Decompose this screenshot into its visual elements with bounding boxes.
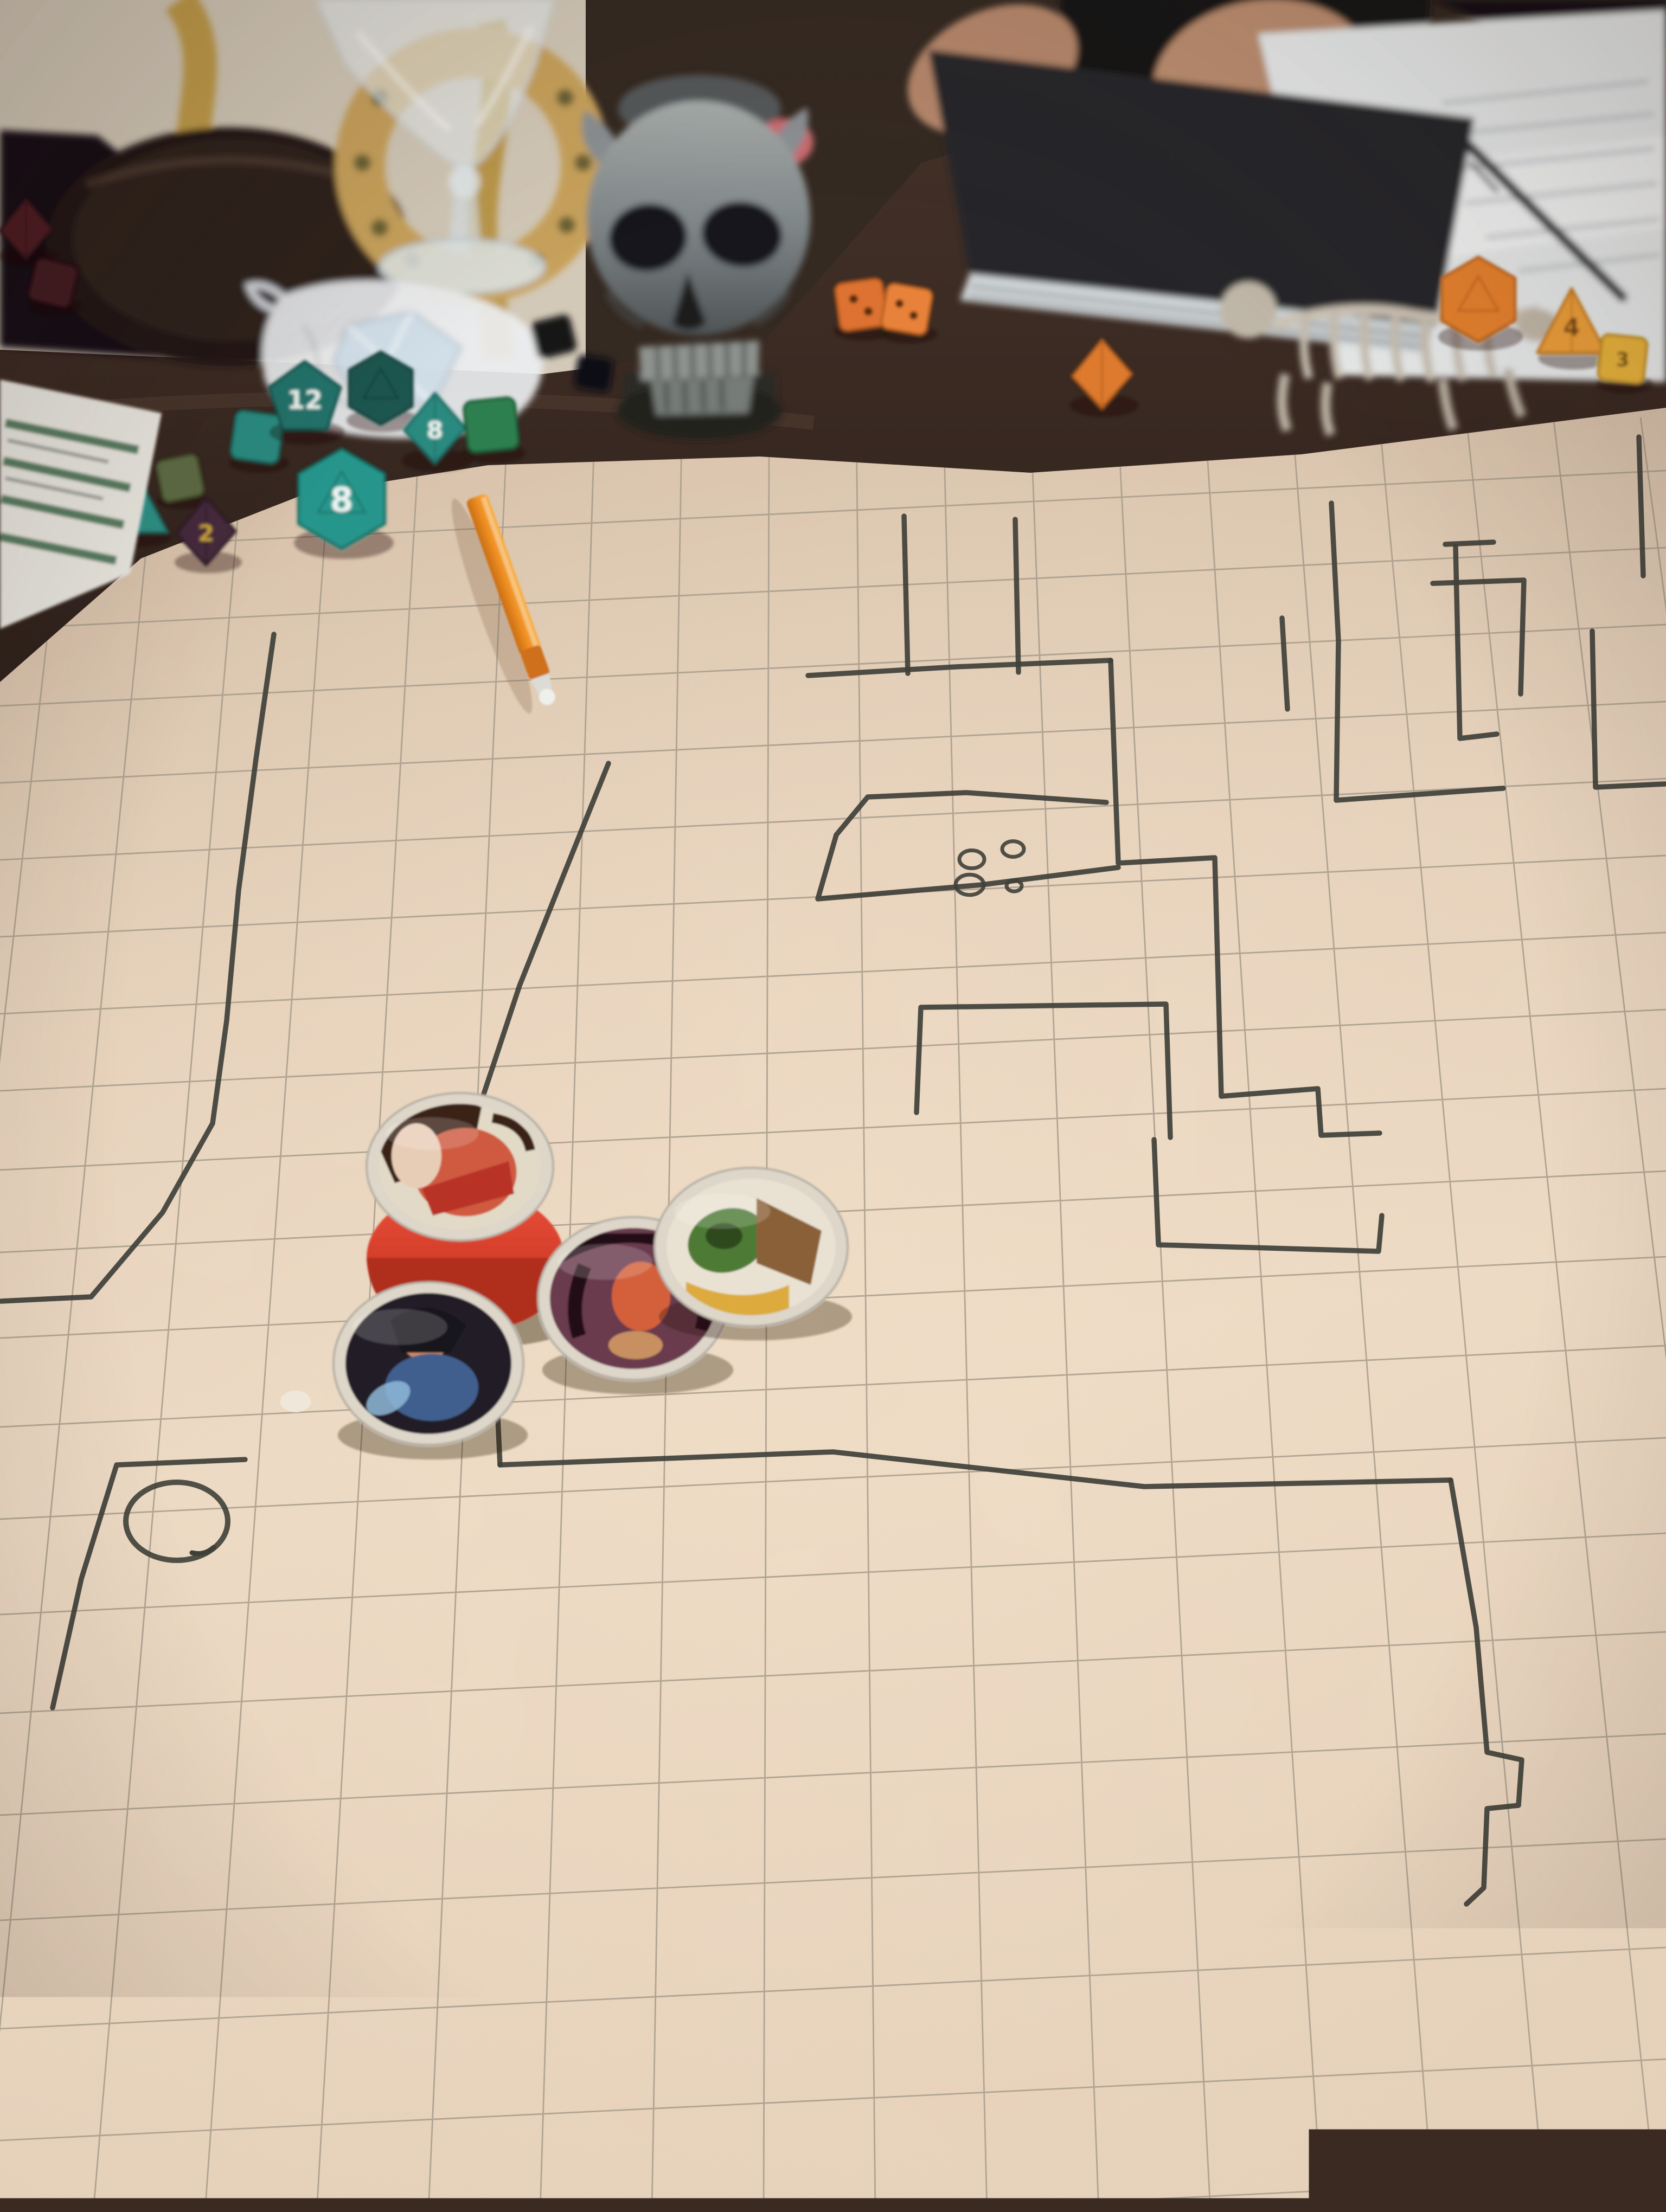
- tabletop-rpg-photo: 2128843: [0, 0, 1666, 2212]
- vignette: [0, 0, 1666, 2212]
- photo-canvas: 2128843: [0, 0, 1666, 2212]
